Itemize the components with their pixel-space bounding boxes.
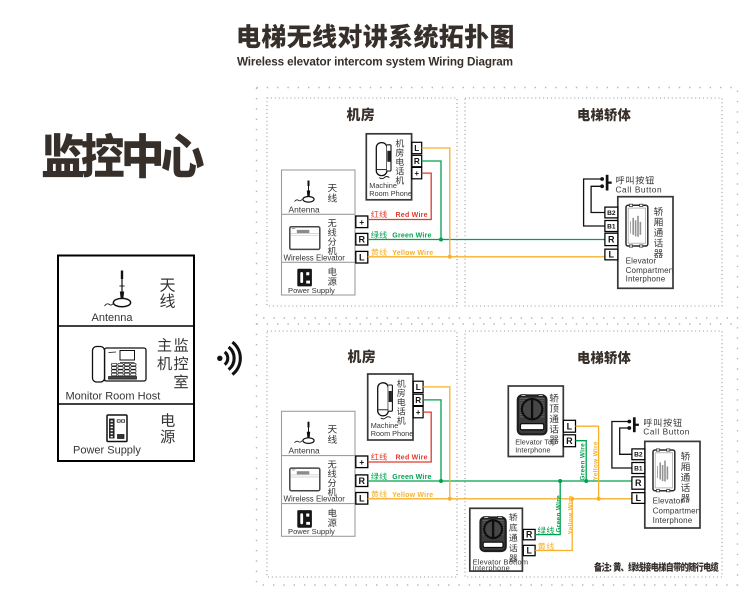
- svg-text:Elevator: Elevator: [653, 496, 684, 505]
- svg-text:Monitor Room Host: Monitor Room Host: [66, 391, 161, 403]
- svg-text:R: R: [414, 157, 420, 166]
- svg-text:+: +: [415, 169, 420, 178]
- svg-text:B1: B1: [607, 223, 616, 230]
- svg-text:R: R: [359, 234, 366, 244]
- svg-text:Power Supply: Power Supply: [73, 445, 141, 457]
- svg-text:R: R: [526, 530, 533, 540]
- svg-text:Yellow Wire: Yellow Wire: [392, 492, 433, 499]
- svg-text:Interphone: Interphone: [626, 275, 666, 284]
- svg-text:R: R: [608, 235, 615, 245]
- svg-text:Power Supply: Power Supply: [288, 527, 335, 536]
- svg-text:R: R: [359, 476, 366, 486]
- svg-text:Room Phone: Room Phone: [369, 189, 412, 198]
- svg-text:Red Wire: Red Wire: [396, 455, 428, 462]
- svg-text:Red Wire: Red Wire: [396, 212, 428, 219]
- svg-text:Wireless elevator intercom sys: Wireless elevator intercom system Wiring…: [237, 55, 513, 68]
- svg-text:R: R: [566, 436, 573, 446]
- svg-text:B1: B1: [634, 465, 643, 472]
- svg-text:Green Wire: Green Wire: [392, 474, 431, 481]
- svg-text:L: L: [359, 493, 365, 503]
- svg-text:+: +: [359, 217, 364, 227]
- svg-text:R: R: [415, 396, 421, 405]
- svg-text:L: L: [416, 383, 421, 392]
- svg-text:L: L: [636, 493, 642, 503]
- svg-text:Interphone: Interphone: [473, 564, 510, 573]
- svg-text:Call Button: Call Button: [616, 185, 663, 195]
- svg-text:Green Wire: Green Wire: [556, 495, 563, 533]
- svg-text:Wireless Elevator: Wireless Elevator: [284, 253, 346, 262]
- svg-text:R: R: [635, 478, 642, 488]
- svg-text:Power Supply: Power Supply: [288, 286, 335, 295]
- svg-text:Interphone: Interphone: [515, 445, 550, 454]
- svg-text:Room Phone: Room Phone: [371, 429, 414, 438]
- svg-text:Yellow Wire: Yellow Wire: [568, 495, 575, 534]
- svg-text:Interphone: Interphone: [653, 516, 693, 525]
- svg-text:L: L: [527, 546, 533, 556]
- svg-text:+: +: [416, 408, 421, 417]
- svg-text:L: L: [567, 421, 573, 431]
- svg-text:L: L: [414, 144, 419, 153]
- svg-text:B2: B2: [634, 452, 643, 459]
- svg-text:Elevator: Elevator: [626, 257, 657, 266]
- svg-text:Yellow Wire: Yellow Wire: [592, 441, 599, 480]
- svg-text:L: L: [609, 250, 615, 260]
- svg-text:+: +: [359, 457, 364, 467]
- svg-text:Compartment: Compartment: [653, 506, 704, 515]
- svg-text:Compartment: Compartment: [626, 266, 677, 275]
- svg-text:Green Wire: Green Wire: [392, 233, 431, 240]
- svg-text:Antenna: Antenna: [92, 312, 134, 324]
- svg-text:Green Wire: Green Wire: [580, 443, 587, 481]
- svg-text:L: L: [359, 252, 365, 262]
- svg-text:Call Button: Call Button: [643, 426, 690, 436]
- svg-text:Antenna: Antenna: [289, 204, 321, 214]
- svg-text:Wireless Elevator: Wireless Elevator: [284, 495, 346, 504]
- svg-text:Yellow Wire: Yellow Wire: [392, 250, 433, 257]
- svg-text:Antenna: Antenna: [289, 446, 321, 456]
- svg-text:B2: B2: [607, 210, 616, 217]
